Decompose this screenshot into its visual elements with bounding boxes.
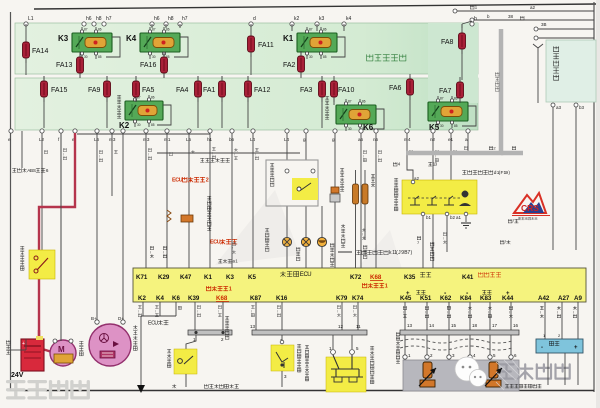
- svg-text:85: 85: [323, 55, 327, 59]
- svg-text:a2: a2: [530, 5, 536, 10]
- svg-text:K83: K83: [480, 295, 492, 302]
- svg-text:30: 30: [309, 55, 313, 59]
- svg-text:K51: K51: [420, 295, 432, 302]
- svg-text:1: 1: [385, 283, 388, 289]
- svg-text:38: 38: [508, 14, 514, 19]
- svg-text:b1: b1: [426, 215, 432, 220]
- svg-text:30: 30: [137, 123, 141, 127]
- svg-text:18: 18: [472, 323, 478, 328]
- svg-text:A27: A27: [558, 295, 570, 302]
- svg-text:3B: 3B: [541, 22, 547, 27]
- svg-text:K4: K4: [126, 34, 137, 43]
- svg-text:h7: h7: [182, 16, 188, 22]
- svg-text:K1: K1: [283, 34, 294, 43]
- svg-text:2: 2: [206, 178, 209, 184]
- svg-text:FA3: FA3: [300, 87, 313, 94]
- svg-text:FA6: FA6: [389, 85, 402, 92]
- svg-text:h6: h6: [86, 16, 92, 22]
- svg-text:85: 85: [454, 124, 458, 128]
- svg-text:85: 85: [151, 123, 155, 127]
- svg-text:K35: K35: [404, 274, 416, 281]
- svg-text:FA7: FA7: [439, 88, 452, 95]
- svg-text:86: 86: [166, 28, 170, 32]
- svg-text:FA11: FA11: [258, 42, 274, 49]
- svg-text:K3: K3: [58, 34, 69, 43]
- svg-text:K39: K39: [188, 295, 200, 302]
- svg-text:+: +: [22, 341, 25, 347]
- svg-text:K47: K47: [180, 274, 192, 281]
- svg-text:B+: B+: [91, 316, 97, 321]
- svg-text:e: e: [8, 137, 11, 142]
- svg-text:K16: K16: [276, 295, 288, 302]
- svg-text:k2: k2: [294, 16, 300, 22]
- svg-text:+: +: [574, 345, 578, 351]
- svg-text:K3: K3: [226, 274, 234, 281]
- svg-text:a1: a1: [456, 215, 462, 220]
- svg-text:K79: K79: [336, 295, 348, 302]
- svg-text:85: 85: [98, 55, 102, 59]
- svg-text:K2: K2: [119, 121, 130, 130]
- svg-text:K4: K4: [156, 295, 164, 302]
- svg-text:M: M: [58, 345, 65, 354]
- svg-text:17: 17: [492, 323, 498, 328]
- svg-text:A9: A9: [574, 295, 582, 302]
- svg-text:L1: L1: [28, 16, 34, 22]
- svg-text:87: 87: [348, 100, 352, 104]
- svg-text:12: 12: [338, 324, 344, 329]
- svg-text:6: 6: [46, 168, 49, 173]
- svg-text:a3: a3: [556, 105, 562, 110]
- svg-text:87: 87: [152, 28, 156, 32]
- svg-text:U: U: [154, 320, 158, 326]
- svg-text:U: U: [179, 178, 183, 184]
- svg-text:K68: K68: [370, 274, 382, 281]
- svg-text:K6: K6: [172, 295, 180, 302]
- svg-text:FA5: FA5: [142, 87, 155, 94]
- svg-text:K5: K5: [248, 274, 256, 281]
- svg-text:FA15: FA15: [51, 87, 67, 94]
- svg-text:13: 13: [407, 323, 413, 328]
- svg-text:87: 87: [440, 97, 444, 101]
- svg-text:16: 16: [513, 323, 519, 328]
- svg-text:b3: b3: [579, 105, 585, 110]
- svg-text:b2: b2: [450, 215, 456, 220]
- svg-text:86: 86: [362, 100, 366, 104]
- svg-text:a2: a2: [414, 176, 420, 181]
- svg-text:D+: D+: [118, 316, 124, 321]
- svg-text:FA12: FA12: [254, 87, 270, 94]
- svg-text:h6: h6: [154, 16, 160, 22]
- svg-text:-: -: [541, 345, 543, 351]
- svg-text:k3: k3: [319, 16, 325, 22]
- svg-text:K6: K6: [363, 123, 374, 132]
- svg-text:FA14: FA14: [32, 48, 48, 55]
- svg-text:15: 15: [451, 323, 457, 328]
- svg-text:87: 87: [309, 28, 313, 32]
- svg-text:K72: K72: [350, 274, 362, 281]
- svg-text:S: S: [33, 168, 36, 173]
- svg-text:87: 87: [84, 28, 88, 32]
- svg-text:A42: A42: [538, 295, 550, 302]
- svg-text:11: 11: [356, 324, 361, 329]
- svg-text:K2: K2: [138, 295, 146, 302]
- svg-text:FA9: FA9: [88, 87, 101, 94]
- svg-text:FA2: FA2: [283, 62, 296, 69]
- svg-text:1: 1: [229, 286, 232, 292]
- svg-text:U: U: [307, 272, 311, 278]
- svg-text:CRS: CRS: [521, 203, 539, 213]
- svg-text:K1: K1: [204, 274, 212, 281]
- svg-text:h8: h8: [168, 16, 174, 22]
- svg-text:d: d: [253, 16, 256, 22]
- svg-text:30: 30: [84, 55, 88, 59]
- svg-text:24V: 24V: [11, 372, 24, 379]
- svg-text:86: 86: [151, 96, 155, 100]
- svg-text:FA16: FA16: [140, 62, 156, 69]
- svg-text:FA13: FA13: [56, 62, 72, 69]
- svg-text:k4: k4: [346, 16, 352, 22]
- svg-text:K87: K87: [250, 295, 262, 302]
- svg-text:30: 30: [152, 55, 156, 59]
- svg-text:86: 86: [98, 28, 102, 32]
- svg-text:K29: K29: [158, 274, 170, 281]
- svg-text:FA1: FA1: [203, 87, 216, 94]
- svg-text:FA10: FA10: [338, 87, 354, 94]
- svg-text:K71: K71: [136, 274, 148, 281]
- svg-text:U: U: [217, 240, 221, 246]
- svg-text:FA8: FA8: [441, 39, 454, 46]
- svg-text:+: +: [506, 291, 510, 297]
- svg-text:86: 86: [323, 28, 327, 32]
- svg-text:h7: h7: [106, 16, 112, 22]
- svg-text:13: 13: [250, 324, 256, 329]
- svg-text:h8: h8: [96, 16, 102, 22]
- svg-text:+: +: [406, 291, 410, 297]
- svg-text:FA4: FA4: [176, 87, 189, 94]
- svg-text:30: 30: [440, 124, 444, 128]
- svg-text:30: 30: [348, 127, 352, 131]
- svg-text:K41: K41: [462, 274, 474, 281]
- svg-text:14: 14: [429, 323, 435, 328]
- svg-text:b: b: [474, 16, 477, 22]
- svg-text:K68: K68: [216, 295, 228, 302]
- svg-text:K74: K74: [352, 295, 364, 302]
